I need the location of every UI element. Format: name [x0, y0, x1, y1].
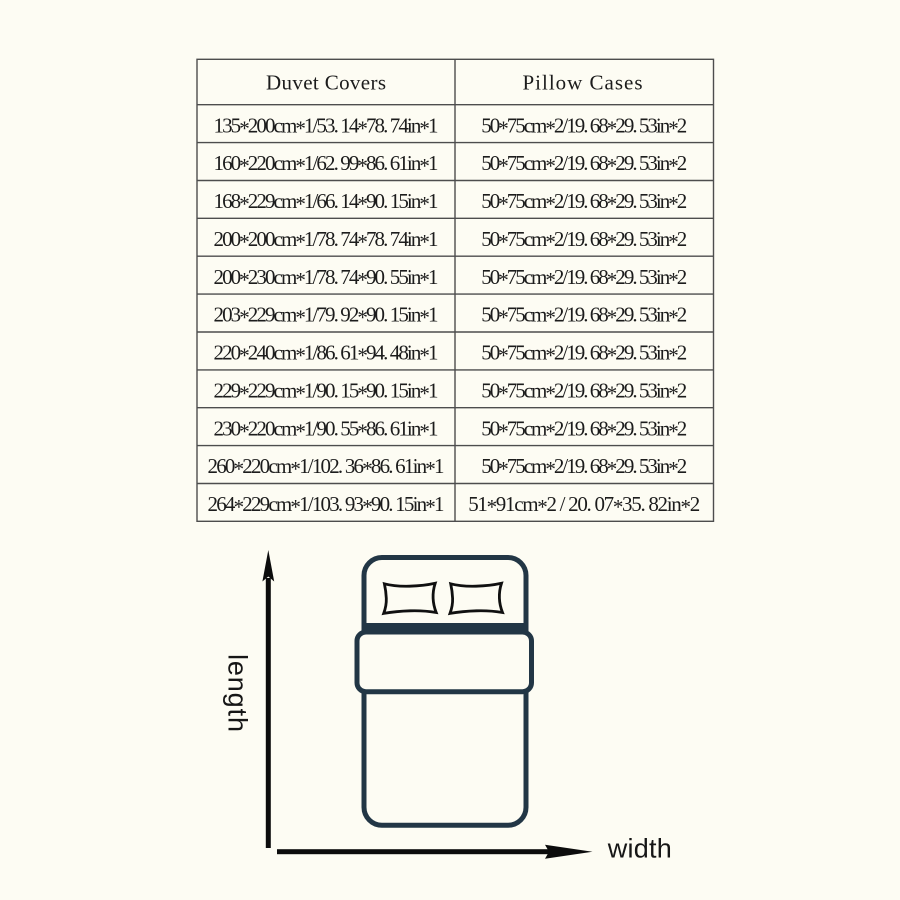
svg-text:Pillow Cases: Pillow Cases [523, 70, 643, 94]
svg-text:200*200cm*1/78. 74*78. 74in*1: 200*200cm*1/78. 74*78. 74in*1 [214, 227, 439, 254]
svg-text:203*229cm*1/79. 92*90. 15in*1: 203*229cm*1/79. 92*90. 15in*1 [214, 303, 439, 330]
svg-text:50*75cm*2/19. 68*29. 53in*2: 50*75cm*2/19. 68*29. 53in*2 [481, 303, 687, 330]
svg-text:50*75cm*2/19. 68*29. 53in*2: 50*75cm*2/19. 68*29. 53in*2 [481, 151, 687, 178]
svg-text:length: length [223, 654, 253, 732]
svg-text:230*220cm*1/90. 55*86. 61in*1: 230*220cm*1/90. 55*86. 61in*1 [214, 416, 439, 443]
svg-text:50*75cm*2/19. 68*29. 53in*2: 50*75cm*2/19. 68*29. 53in*2 [481, 416, 687, 443]
svg-text:50*75cm*2/19. 68*29. 53in*2: 50*75cm*2/19. 68*29. 53in*2 [481, 454, 687, 481]
svg-text:168*229cm*1/66. 14*90. 15in*1: 168*229cm*1/66. 14*90. 15in*1 [214, 189, 439, 216]
svg-text:50*75cm*2/19. 68*29. 53in*2: 50*75cm*2/19. 68*29. 53in*2 [481, 341, 687, 368]
svg-text:50*75cm*2/19. 68*29. 53in*2: 50*75cm*2/19. 68*29. 53in*2 [481, 379, 687, 406]
svg-text:160*220cm*1/62. 99*86. 61in*1: 160*220cm*1/62. 99*86. 61in*1 [214, 151, 439, 178]
svg-text:50*75cm*2/19. 68*29. 53in*2: 50*75cm*2/19. 68*29. 53in*2 [481, 265, 687, 292]
svg-text:50*75cm*2/19. 68*29. 53in*2: 50*75cm*2/19. 68*29. 53in*2 [481, 113, 687, 140]
svg-text:51*91cm*2 / 20. 07*35. 82in*2: 51*91cm*2 / 20. 07*35. 82in*2 [468, 492, 700, 519]
svg-text:220*240cm*1/86. 61*94. 48in*1: 220*240cm*1/86. 61*94. 48in*1 [214, 341, 439, 368]
svg-text:200*230cm*1/78. 74*90. 55in*1: 200*230cm*1/78. 74*90. 55in*1 [214, 265, 439, 292]
svg-text:50*75cm*2/19. 68*29. 53in*2: 50*75cm*2/19. 68*29. 53in*2 [481, 227, 687, 254]
svg-text:229*229cm*1/90. 15*90. 15in*1: 229*229cm*1/90. 15*90. 15in*1 [214, 379, 439, 406]
svg-text:260*220cm*1/102. 36*86. 61in*1: 260*220cm*1/102. 36*86. 61in*1 [208, 454, 445, 481]
svg-text:width: width [607, 833, 672, 863]
svg-text:135*200cm*1/53. 14*78. 74in*1: 135*200cm*1/53. 14*78. 74in*1 [214, 113, 439, 140]
svg-text:264*229cm*1/103. 93*90. 15in*1: 264*229cm*1/103. 93*90. 15in*1 [208, 492, 445, 519]
svg-text:Duvet Covers: Duvet Covers [266, 70, 386, 94]
svg-text:50*75cm*2/19. 68*29. 53in*2: 50*75cm*2/19. 68*29. 53in*2 [481, 189, 687, 216]
